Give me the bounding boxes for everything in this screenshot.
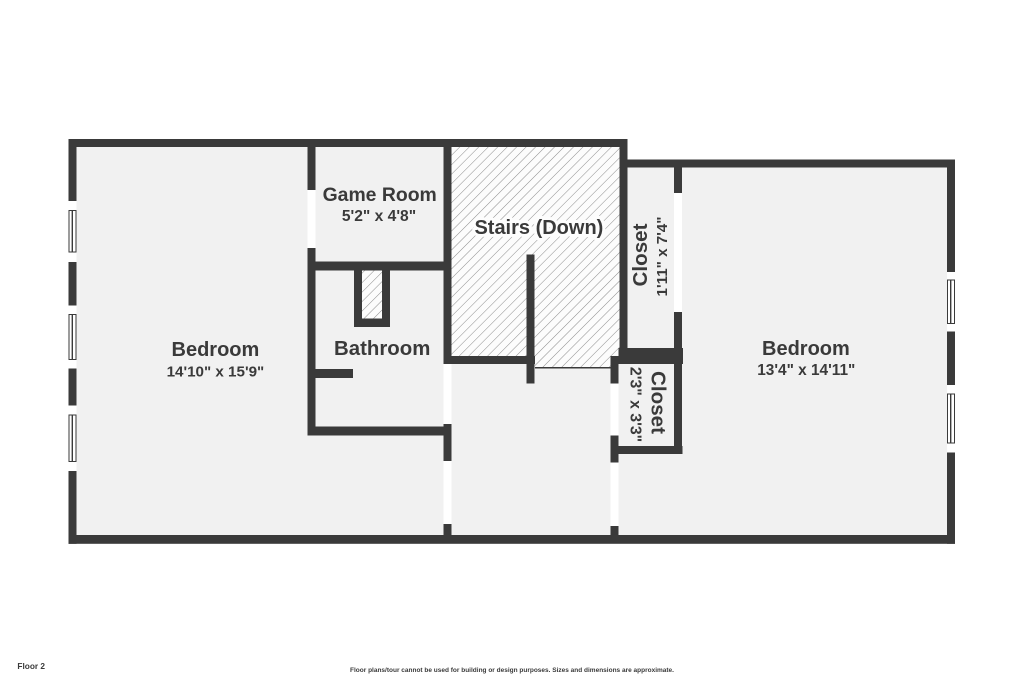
- svg-text:Floor 2: Floor 2: [17, 661, 45, 671]
- svg-text:Floor plans/tour cannot be use: Floor plans/tour cannot be used for buil…: [350, 667, 674, 674]
- svg-text:1'11" x 7'4": 1'11" x 7'4": [654, 217, 671, 297]
- svg-text:5'2" x 4'8": 5'2" x 4'8": [342, 208, 416, 225]
- svg-text:Closet: Closet: [629, 223, 652, 286]
- svg-text:Bathroom: Bathroom: [334, 338, 430, 360]
- svg-text:Bedroom: Bedroom: [172, 339, 260, 361]
- svg-text:2'3" x 3'3": 2'3" x 3'3": [627, 367, 644, 442]
- svg-text:Closet: Closet: [647, 371, 670, 434]
- svg-text:Stairs (Down): Stairs (Down): [474, 217, 603, 239]
- svg-text:Game Room: Game Room: [323, 184, 437, 206]
- svg-text:13'4" x 14'11": 13'4" x 14'11": [757, 362, 855, 379]
- svg-text:Bedroom: Bedroom: [762, 338, 850, 360]
- svg-text:14'10" x 15'9": 14'10" x 15'9": [167, 363, 265, 380]
